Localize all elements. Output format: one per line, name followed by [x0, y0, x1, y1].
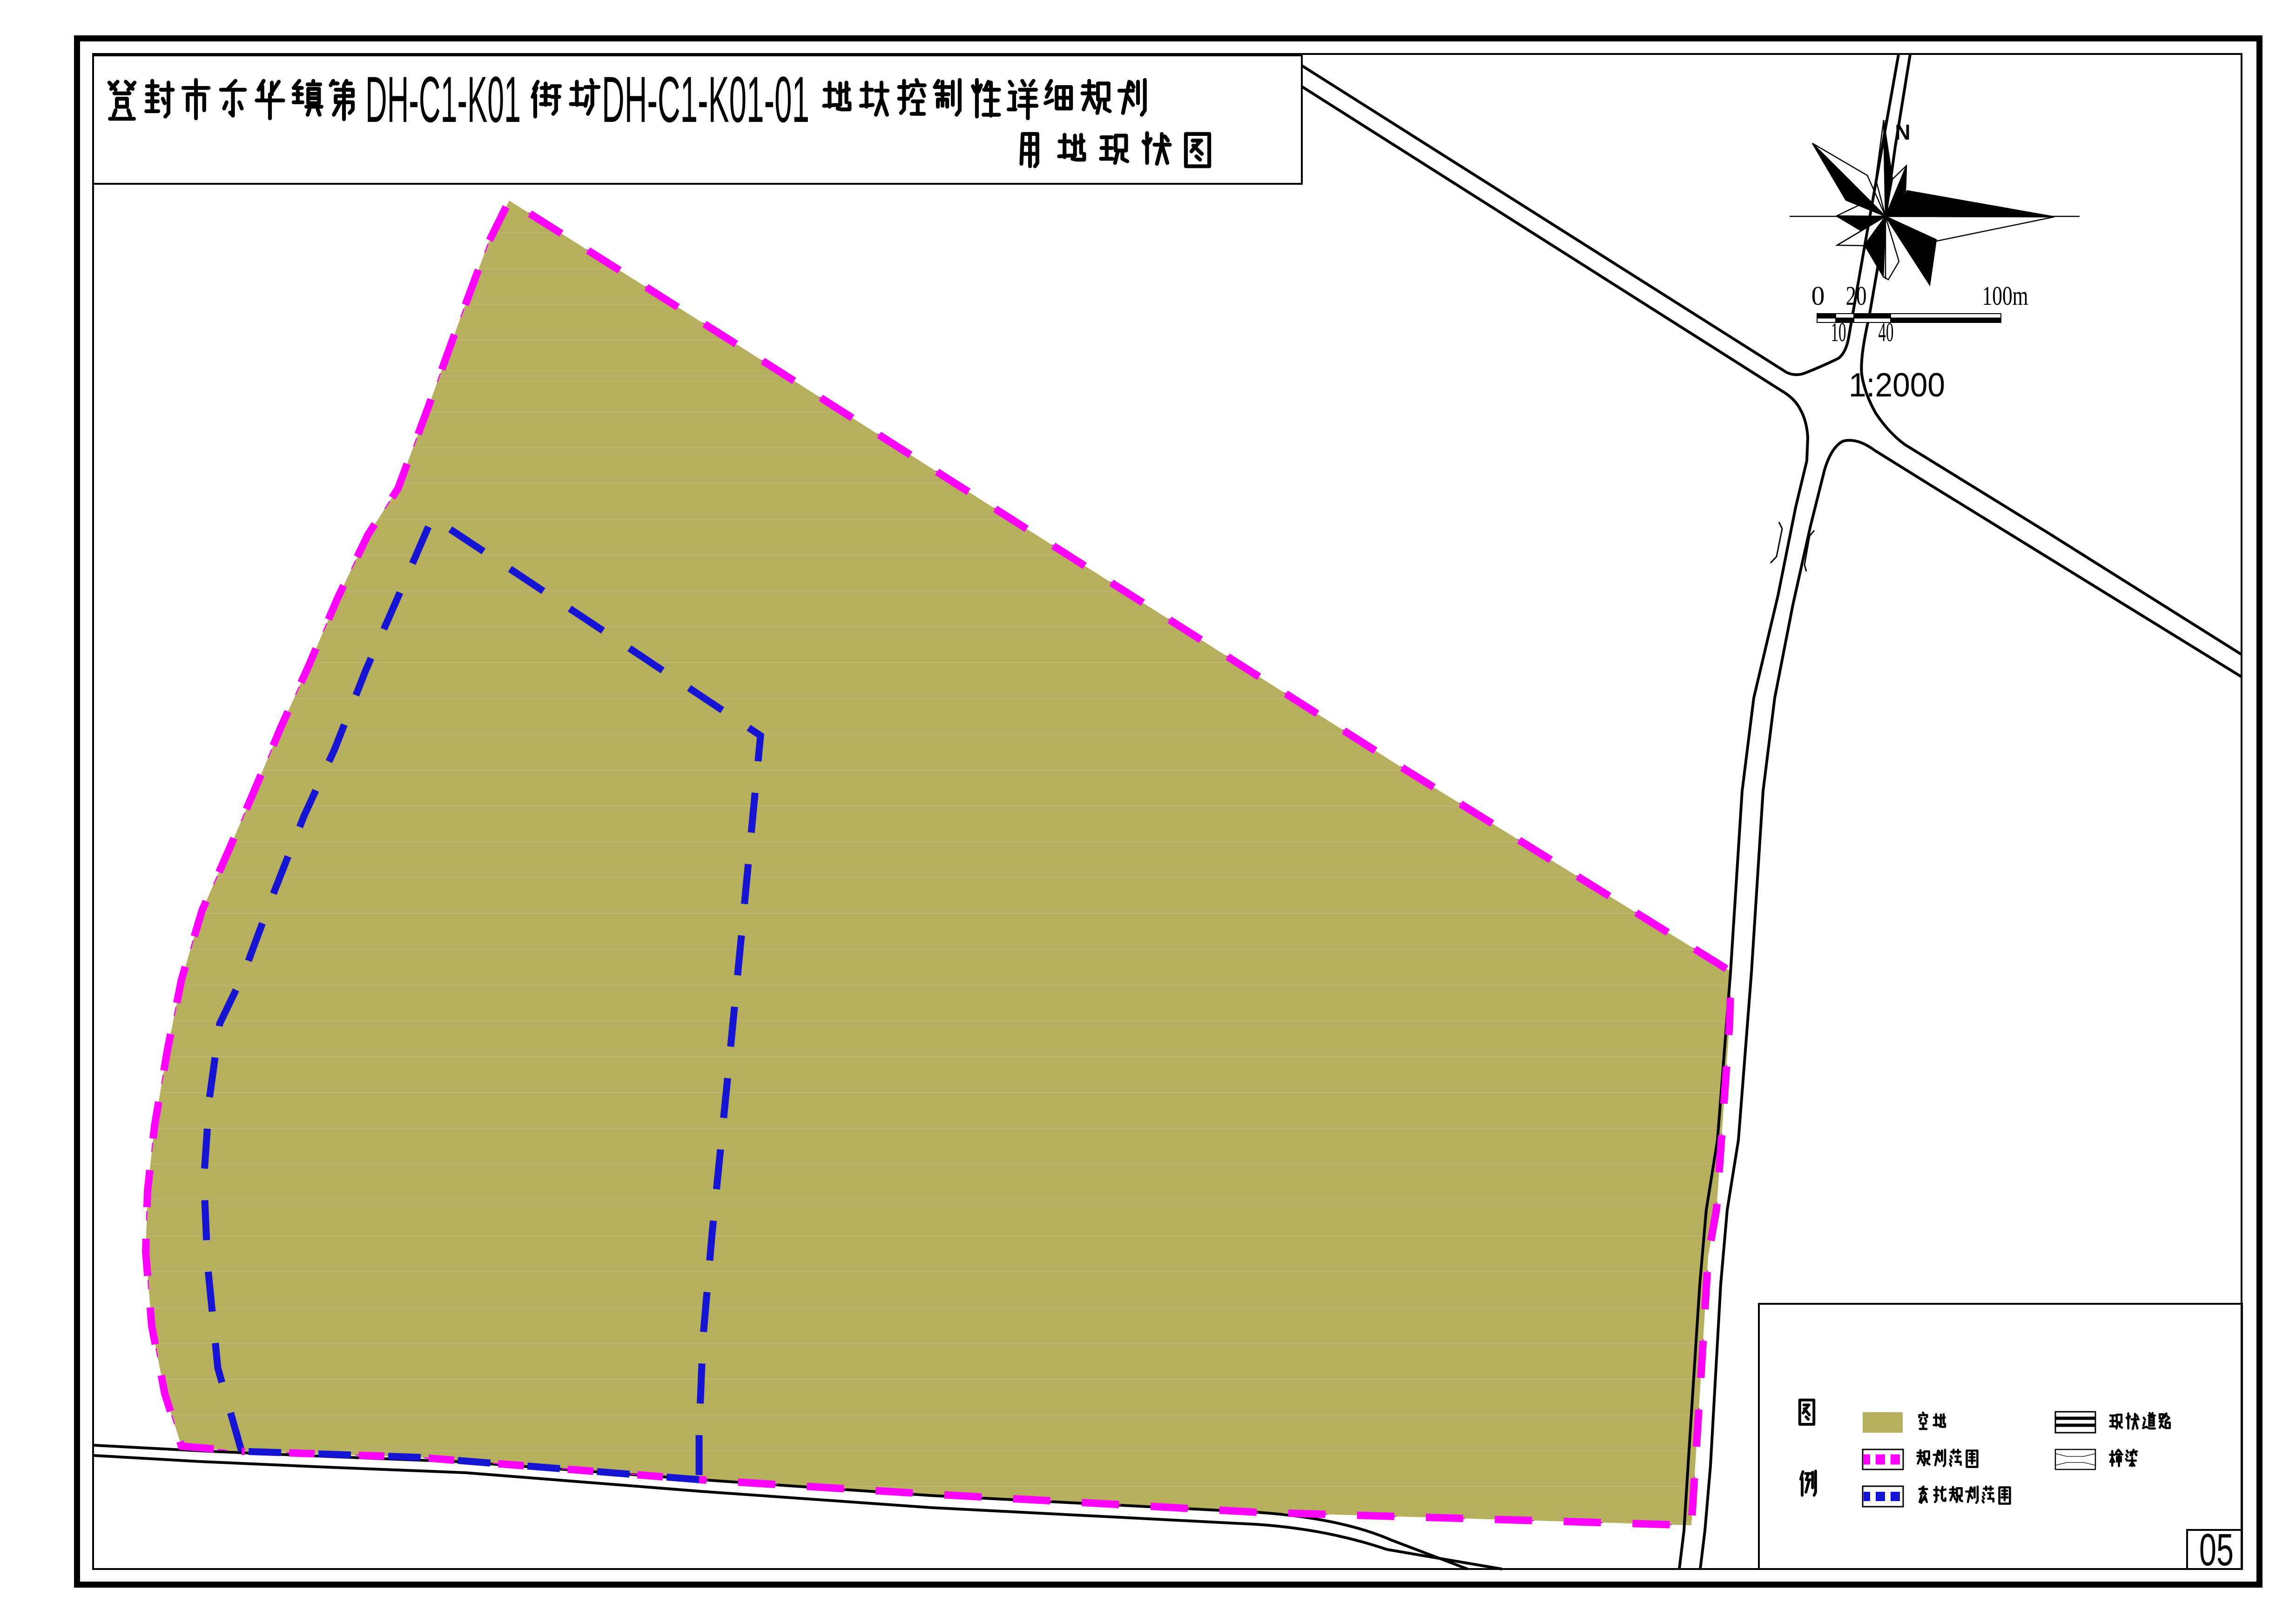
svg-text:N: N	[1895, 120, 1910, 144]
svg-text:DH-C1-K01: DH-C1-K01	[365, 63, 521, 136]
svg-text:40: 40	[1879, 317, 1894, 347]
svg-text:1:2000: 1:2000	[1849, 367, 1945, 404]
svg-text:10: 10	[1831, 317, 1846, 347]
svg-text:DH-C1-K01-01: DH-C1-K01-01	[602, 63, 809, 136]
svg-text:0: 0	[1811, 281, 1825, 311]
svg-text:05: 05	[2199, 1524, 2234, 1575]
svg-text:20: 20	[1846, 281, 1867, 311]
svg-text:100m: 100m	[1982, 281, 2028, 311]
